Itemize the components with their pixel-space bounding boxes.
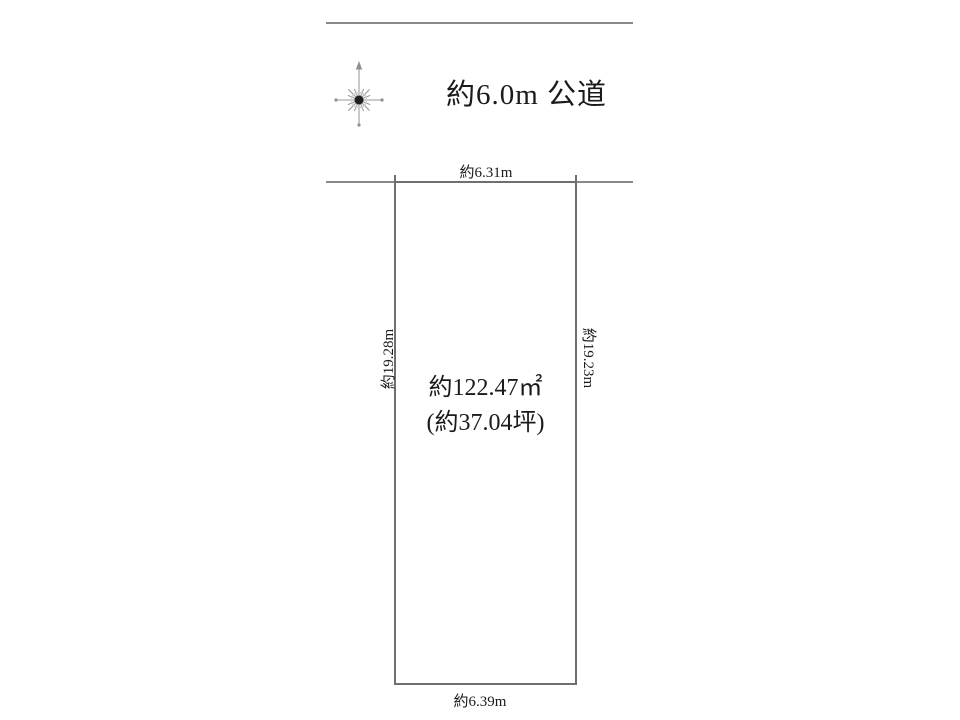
road-top-edge-line	[326, 22, 633, 24]
compass-north-icon	[328, 60, 390, 130]
road-label: 約6.0m 公道	[446, 71, 607, 113]
area-label: 約122.47㎡ (約37.04坪)	[394, 371, 577, 441]
dimension-top: 約6.31m	[395, 161, 577, 182]
dimension-bottom: 約6.39m	[389, 690, 571, 711]
area-tsubo: (約37.04坪)	[394, 406, 577, 441]
dimension-left: 約19.28m	[377, 319, 395, 399]
area-square-meters: 約122.47㎡	[394, 371, 577, 406]
dimension-right: 約19.23m	[582, 318, 600, 398]
land-plot-diagram: 約6.0m 公道 約6.31m 約19.28m 約19.23m 約6.39m 約…	[0, 0, 960, 720]
